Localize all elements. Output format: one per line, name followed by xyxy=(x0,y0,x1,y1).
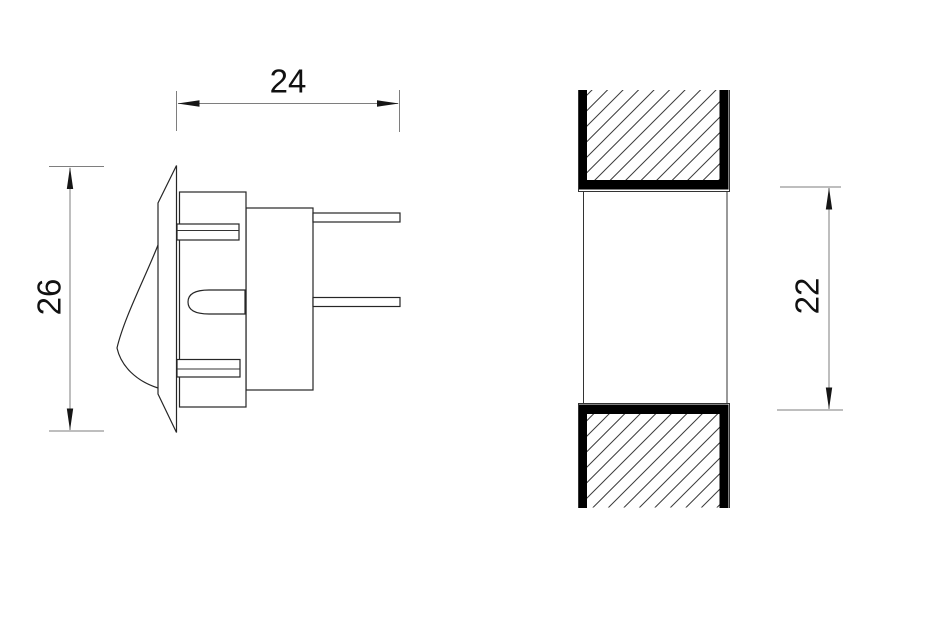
dimension-label-22: 22 xyxy=(789,278,826,315)
rocker-actuator-curve xyxy=(117,245,158,388)
dimension-label-26: 26 xyxy=(31,279,68,316)
arrowhead-down xyxy=(67,409,73,431)
switch-side-view xyxy=(117,166,400,433)
arrowhead-up xyxy=(826,188,832,210)
dimension-label-24: 24 xyxy=(270,63,307,100)
technical-drawing-page: 24 26 xyxy=(0,0,944,621)
upper-section-hatch xyxy=(587,90,720,181)
upper-section-left-bar xyxy=(579,90,587,190)
center-latch-tab xyxy=(188,290,245,314)
upper-snap-clip xyxy=(177,224,239,240)
arrowhead-left xyxy=(178,100,200,106)
upper-terminal-pin xyxy=(313,213,400,222)
dimension-height-26: 26 xyxy=(31,167,104,432)
lower-section-top-bar xyxy=(583,405,725,415)
mounting-flange xyxy=(158,166,177,433)
lower-snap-clip xyxy=(177,360,240,378)
lower-section-hatch xyxy=(587,414,720,508)
upper-section-right-bar xyxy=(720,90,729,190)
arrowhead-right xyxy=(377,100,399,106)
lower-terminal-pin xyxy=(313,298,400,307)
dimension-cutout-22: 22 xyxy=(777,187,843,410)
lower-section-left-bar xyxy=(579,405,587,509)
arrowhead-up xyxy=(67,167,73,189)
technical-drawing-canvas: 24 26 xyxy=(0,0,944,621)
arrowhead-down xyxy=(826,388,832,410)
lower-section-right-bar xyxy=(720,405,729,509)
panel-section-view xyxy=(578,90,730,508)
dimension-width-24: 24 xyxy=(177,63,400,132)
rear-housing xyxy=(246,208,313,390)
panel-upper-section xyxy=(578,90,730,192)
panel-lower-section xyxy=(578,404,730,509)
upper-section-bottom-bar xyxy=(583,180,725,190)
